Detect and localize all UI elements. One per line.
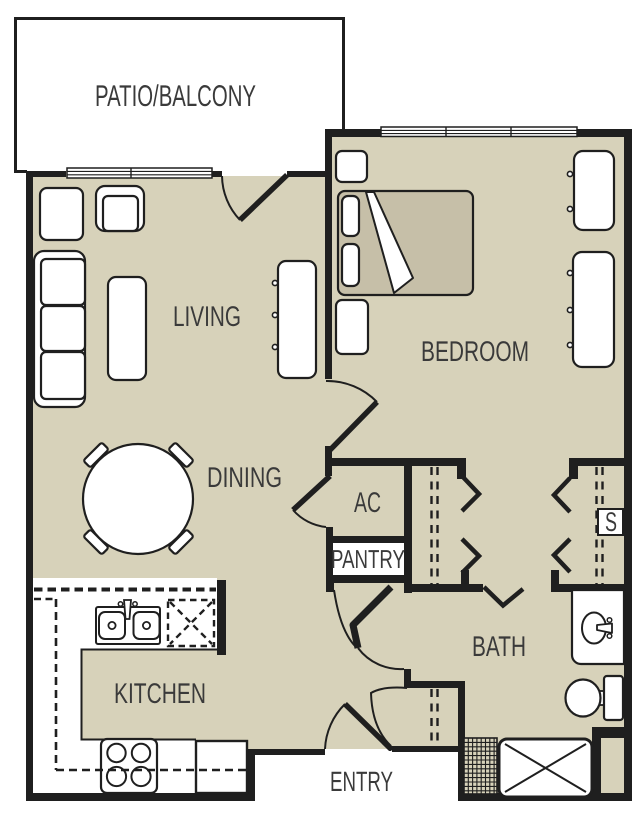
svg-text:ENTRY: ENTRY <box>330 766 393 797</box>
svg-text:AC: AC <box>354 487 381 519</box>
svg-text:BEDROOM: BEDROOM <box>421 336 529 368</box>
svg-text:BATH: BATH <box>472 631 526 663</box>
svg-text:LIVING: LIVING <box>173 301 241 333</box>
svg-text:DINING: DINING <box>207 462 282 494</box>
svg-text:PANTRY: PANTRY <box>331 544 405 574</box>
svg-text:KITCHEN: KITCHEN <box>114 678 206 710</box>
svg-text:S: S <box>605 507 617 537</box>
svg-text:PATIO/BALCONY: PATIO/BALCONY <box>95 80 256 113</box>
